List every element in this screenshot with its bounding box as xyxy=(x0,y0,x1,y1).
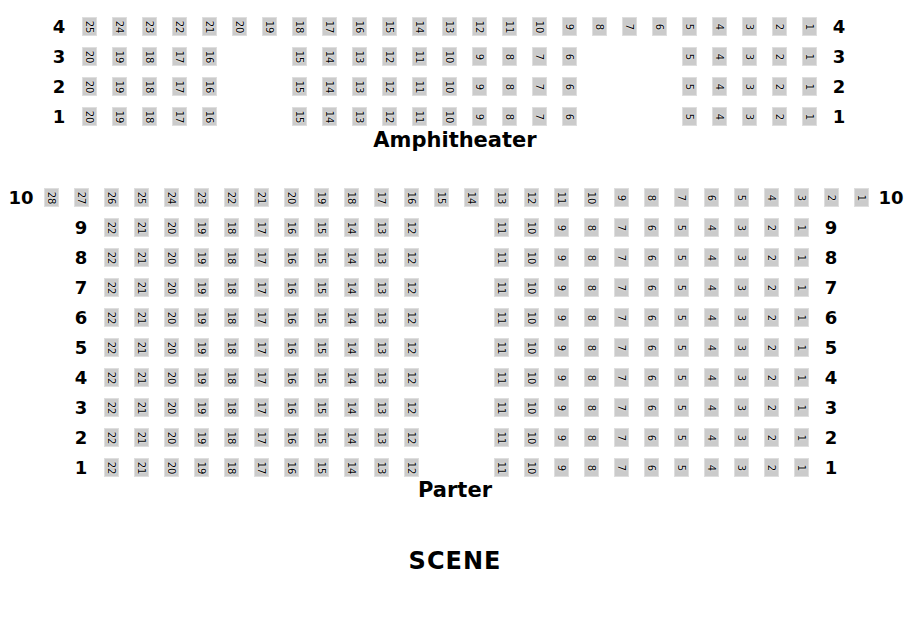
seat-parter-r6-s17[interactable]: 17 xyxy=(254,308,269,327)
seat-parter-r6-s19[interactable]: 19 xyxy=(194,308,209,327)
seat-parter-r10-s12[interactable]: 12 xyxy=(524,188,539,207)
seat-parter-r9-s9[interactable]: 9 xyxy=(554,218,569,237)
seat-parter-r4-s19[interactable]: 19 xyxy=(194,368,209,387)
seat-parter-r10-s14[interactable]: 14 xyxy=(464,188,479,207)
seat-parter-r4-s1[interactable]: 1 xyxy=(794,368,809,387)
seat-amphitheater-r3-s10[interactable]: 10 xyxy=(442,47,457,66)
seat-parter-r9-s19[interactable]: 19 xyxy=(194,218,209,237)
seat-parter-r3-s5[interactable]: 5 xyxy=(674,398,689,417)
seat-parter-r6-s21[interactable]: 21 xyxy=(134,308,149,327)
seat-parter-r8-s2[interactable]: 2 xyxy=(764,248,779,267)
seat-parter-r10-s3[interactable]: 3 xyxy=(794,188,809,207)
seat-parter-r9-s6[interactable]: 6 xyxy=(644,218,659,237)
seat-parter-r5-s17[interactable]: 17 xyxy=(254,338,269,357)
seat-amphitheater-r3-s1[interactable]: 1 xyxy=(802,47,817,66)
seat-parter-r9-s2[interactable]: 2 xyxy=(764,218,779,237)
seat-parter-r5-s13[interactable]: 13 xyxy=(374,338,389,357)
seat-amphitheater-r4-s10[interactable]: 10 xyxy=(532,17,547,36)
seat-parter-r5-s9[interactable]: 9 xyxy=(554,338,569,357)
seat-amphitheater-r4-s14[interactable]: 14 xyxy=(412,17,427,36)
seat-parter-r10-s7[interactable]: 7 xyxy=(674,188,689,207)
seat-parter-r7-s21[interactable]: 21 xyxy=(134,278,149,297)
seat-parter-r3-s3[interactable]: 3 xyxy=(734,398,749,417)
seat-parter-r10-s19[interactable]: 19 xyxy=(314,188,329,207)
seat-amphitheater-r4-s15[interactable]: 15 xyxy=(382,17,397,36)
seat-amphitheater-r1-s6[interactable]: 6 xyxy=(562,107,577,126)
seat-amphitheater-r2-s5[interactable]: 5 xyxy=(682,77,697,96)
seat-parter-r5-s6[interactable]: 6 xyxy=(644,338,659,357)
seat-parter-r7-s9[interactable]: 9 xyxy=(554,278,569,297)
seat-parter-r5-s3[interactable]: 3 xyxy=(734,338,749,357)
seat-parter-r8-s11[interactable]: 11 xyxy=(494,248,509,267)
seat-parter-r4-s5[interactable]: 5 xyxy=(674,368,689,387)
seat-parter-r8-s15[interactable]: 15 xyxy=(314,248,329,267)
seat-amphitheater-r1-s16[interactable]: 16 xyxy=(202,107,217,126)
seat-parter-r10-s28[interactable]: 28 xyxy=(44,188,59,207)
seat-amphitheater-r2-s8[interactable]: 8 xyxy=(502,77,517,96)
seat-parter-r8-s16[interactable]: 16 xyxy=(284,248,299,267)
seat-parter-r5-s22[interactable]: 22 xyxy=(104,338,119,357)
seat-parter-r2-s5[interactable]: 5 xyxy=(674,428,689,447)
seat-parter-r4-s21[interactable]: 21 xyxy=(134,368,149,387)
seat-parter-r2-s7[interactable]: 7 xyxy=(614,428,629,447)
seat-amphitheater-r3-s14[interactable]: 14 xyxy=(322,47,337,66)
seat-amphitheater-r4-s1[interactable]: 1 xyxy=(802,17,817,36)
seat-parter-r8-s8[interactable]: 8 xyxy=(584,248,599,267)
seat-parter-r5-s21[interactable]: 21 xyxy=(134,338,149,357)
seat-parter-r6-s9[interactable]: 9 xyxy=(554,308,569,327)
seat-amphitheater-r2-s12[interactable]: 12 xyxy=(382,77,397,96)
seat-parter-r10-s9[interactable]: 9 xyxy=(614,188,629,207)
seat-parter-r8-s12[interactable]: 12 xyxy=(404,248,419,267)
seat-parter-r8-s20[interactable]: 20 xyxy=(164,248,179,267)
seat-parter-r1-s11[interactable]: 11 xyxy=(494,458,509,477)
seat-parter-r8-s1[interactable]: 1 xyxy=(794,248,809,267)
seat-parter-r10-s6[interactable]: 6 xyxy=(704,188,719,207)
seat-parter-r6-s18[interactable]: 18 xyxy=(224,308,239,327)
seat-parter-r8-s10[interactable]: 10 xyxy=(524,248,539,267)
seat-amphitheater-r3-s13[interactable]: 13 xyxy=(352,47,367,66)
seat-parter-r5-s19[interactable]: 19 xyxy=(194,338,209,357)
seat-parter-r9-s1[interactable]: 1 xyxy=(794,218,809,237)
seat-amphitheater-r3-s4[interactable]: 4 xyxy=(712,47,727,66)
seat-parter-r6-s5[interactable]: 5 xyxy=(674,308,689,327)
seat-parter-r9-s21[interactable]: 21 xyxy=(134,218,149,237)
seat-parter-r10-s20[interactable]: 20 xyxy=(284,188,299,207)
seat-parter-r5-s4[interactable]: 4 xyxy=(704,338,719,357)
seat-parter-r1-s5[interactable]: 5 xyxy=(674,458,689,477)
seat-parter-r2-s9[interactable]: 9 xyxy=(554,428,569,447)
seat-parter-r6-s1[interactable]: 1 xyxy=(794,308,809,327)
seat-amphitheater-r2-s4[interactable]: 4 xyxy=(712,77,727,96)
seat-parter-r10-s18[interactable]: 18 xyxy=(344,188,359,207)
seat-parter-r3-s18[interactable]: 18 xyxy=(224,398,239,417)
seat-parter-r9-s12[interactable]: 12 xyxy=(404,218,419,237)
seat-amphitheater-r2-s18[interactable]: 18 xyxy=(142,77,157,96)
seat-parter-r4-s17[interactable]: 17 xyxy=(254,368,269,387)
seat-parter-r7-s1[interactable]: 1 xyxy=(794,278,809,297)
seat-parter-r8-s18[interactable]: 18 xyxy=(224,248,239,267)
seat-parter-r6-s13[interactable]: 13 xyxy=(374,308,389,327)
seat-parter-r6-s12[interactable]: 12 xyxy=(404,308,419,327)
seat-parter-r3-s6[interactable]: 6 xyxy=(644,398,659,417)
seat-parter-r7-s12[interactable]: 12 xyxy=(404,278,419,297)
seat-amphitheater-r2-s7[interactable]: 7 xyxy=(532,77,547,96)
seat-parter-r9-s11[interactable]: 11 xyxy=(494,218,509,237)
seat-parter-r5-s18[interactable]: 18 xyxy=(224,338,239,357)
seat-parter-r2-s10[interactable]: 10 xyxy=(524,428,539,447)
seat-parter-r9-s4[interactable]: 4 xyxy=(704,218,719,237)
seat-amphitheater-r1-s17[interactable]: 17 xyxy=(172,107,187,126)
seat-parter-r6-s15[interactable]: 15 xyxy=(314,308,329,327)
seat-parter-r2-s3[interactable]: 3 xyxy=(734,428,749,447)
seat-parter-r3-s9[interactable]: 9 xyxy=(554,398,569,417)
seat-amphitheater-r1-s4[interactable]: 4 xyxy=(712,107,727,126)
seat-parter-r1-s3[interactable]: 3 xyxy=(734,458,749,477)
seat-parter-r4-s6[interactable]: 6 xyxy=(644,368,659,387)
seat-parter-r7-s18[interactable]: 18 xyxy=(224,278,239,297)
seat-amphitheater-r3-s9[interactable]: 9 xyxy=(472,47,487,66)
seat-parter-r9-s20[interactable]: 20 xyxy=(164,218,179,237)
seat-amphitheater-r2-s19[interactable]: 19 xyxy=(112,77,127,96)
seat-parter-r5-s5[interactable]: 5 xyxy=(674,338,689,357)
seat-parter-r2-s12[interactable]: 12 xyxy=(404,428,419,447)
seat-parter-r3-s20[interactable]: 20 xyxy=(164,398,179,417)
seat-amphitheater-r3-s7[interactable]: 7 xyxy=(532,47,547,66)
seat-amphitheater-r3-s2[interactable]: 2 xyxy=(772,47,787,66)
seat-amphitheater-r3-s8[interactable]: 8 xyxy=(502,47,517,66)
seat-parter-r2-s14[interactable]: 14 xyxy=(344,428,359,447)
seat-amphitheater-r2-s1[interactable]: 1 xyxy=(802,77,817,96)
seat-amphitheater-r3-s16[interactable]: 16 xyxy=(202,47,217,66)
seat-parter-r10-s27[interactable]: 27 xyxy=(74,188,89,207)
seat-parter-r2-s15[interactable]: 15 xyxy=(314,428,329,447)
seat-parter-r7-s7[interactable]: 7 xyxy=(614,278,629,297)
seat-parter-r7-s17[interactable]: 17 xyxy=(254,278,269,297)
seat-amphitheater-r1-s14[interactable]: 14 xyxy=(322,107,337,126)
seat-parter-r1-s22[interactable]: 22 xyxy=(104,458,119,477)
seat-parter-r6-s6[interactable]: 6 xyxy=(644,308,659,327)
seat-parter-r1-s6[interactable]: 6 xyxy=(644,458,659,477)
seat-parter-r10-s10[interactable]: 10 xyxy=(584,188,599,207)
seat-amphitheater-r3-s3[interactable]: 3 xyxy=(742,47,757,66)
seat-amphitheater-r4-s13[interactable]: 13 xyxy=(442,17,457,36)
seat-parter-r8-s9[interactable]: 9 xyxy=(554,248,569,267)
seat-parter-r4-s20[interactable]: 20 xyxy=(164,368,179,387)
seat-amphitheater-r1-s3[interactable]: 3 xyxy=(742,107,757,126)
seat-parter-r4-s14[interactable]: 14 xyxy=(344,368,359,387)
seat-parter-r7-s19[interactable]: 19 xyxy=(194,278,209,297)
seat-amphitheater-r1-s12[interactable]: 12 xyxy=(382,107,397,126)
seat-amphitheater-r4-s5[interactable]: 5 xyxy=(682,17,697,36)
seat-amphitheater-r1-s15[interactable]: 15 xyxy=(292,107,307,126)
seat-parter-r4-s10[interactable]: 10 xyxy=(524,368,539,387)
seat-amphitheater-r2-s17[interactable]: 17 xyxy=(172,77,187,96)
seat-parter-r9-s7[interactable]: 7 xyxy=(614,218,629,237)
seat-parter-r2-s20[interactable]: 20 xyxy=(164,428,179,447)
seat-parter-r9-s16[interactable]: 16 xyxy=(284,218,299,237)
seat-parter-r10-s5[interactable]: 5 xyxy=(734,188,749,207)
seat-amphitheater-r1-s1[interactable]: 1 xyxy=(802,107,817,126)
seat-parter-r3-s10[interactable]: 10 xyxy=(524,398,539,417)
seat-parter-r2-s8[interactable]: 8 xyxy=(584,428,599,447)
seat-parter-r4-s4[interactable]: 4 xyxy=(704,368,719,387)
seat-parter-r2-s16[interactable]: 16 xyxy=(284,428,299,447)
seat-parter-r6-s10[interactable]: 10 xyxy=(524,308,539,327)
seat-parter-r8-s3[interactable]: 3 xyxy=(734,248,749,267)
seat-parter-r1-s21[interactable]: 21 xyxy=(134,458,149,477)
seat-parter-r3-s17[interactable]: 17 xyxy=(254,398,269,417)
seat-parter-r10-s21[interactable]: 21 xyxy=(254,188,269,207)
seat-parter-r4-s8[interactable]: 8 xyxy=(584,368,599,387)
seat-amphitheater-r1-s9[interactable]: 9 xyxy=(472,107,487,126)
seat-parter-r4-s3[interactable]: 3 xyxy=(734,368,749,387)
seat-parter-r3-s1[interactable]: 1 xyxy=(794,398,809,417)
seat-parter-r7-s16[interactable]: 16 xyxy=(284,278,299,297)
seat-parter-r9-s22[interactable]: 22 xyxy=(104,218,119,237)
seat-parter-r3-s19[interactable]: 19 xyxy=(194,398,209,417)
seat-parter-r2-s4[interactable]: 4 xyxy=(704,428,719,447)
seat-parter-r1-s17[interactable]: 17 xyxy=(254,458,269,477)
seat-amphitheater-r4-s16[interactable]: 16 xyxy=(352,17,367,36)
seat-parter-r5-s15[interactable]: 15 xyxy=(314,338,329,357)
seat-parter-r4-s16[interactable]: 16 xyxy=(284,368,299,387)
seat-parter-r1-s12[interactable]: 12 xyxy=(404,458,419,477)
seat-parter-r2-s13[interactable]: 13 xyxy=(374,428,389,447)
seat-parter-r10-s1[interactable]: 1 xyxy=(854,188,869,207)
seat-parter-r3-s22[interactable]: 22 xyxy=(104,398,119,417)
seat-parter-r9-s13[interactable]: 13 xyxy=(374,218,389,237)
seat-amphitheater-r1-s18[interactable]: 18 xyxy=(142,107,157,126)
seat-amphitheater-r3-s6[interactable]: 6 xyxy=(562,47,577,66)
seat-parter-r8-s14[interactable]: 14 xyxy=(344,248,359,267)
seat-parter-r6-s20[interactable]: 20 xyxy=(164,308,179,327)
seat-parter-r3-s11[interactable]: 11 xyxy=(494,398,509,417)
seat-parter-r9-s5[interactable]: 5 xyxy=(674,218,689,237)
seat-amphitheater-r2-s14[interactable]: 14 xyxy=(322,77,337,96)
seat-parter-r6-s4[interactable]: 4 xyxy=(704,308,719,327)
seat-parter-r1-s10[interactable]: 10 xyxy=(524,458,539,477)
seat-parter-r10-s16[interactable]: 16 xyxy=(404,188,419,207)
seat-parter-r6-s3[interactable]: 3 xyxy=(734,308,749,327)
seat-parter-r5-s2[interactable]: 2 xyxy=(764,338,779,357)
seat-parter-r2-s19[interactable]: 19 xyxy=(194,428,209,447)
seat-parter-r7-s4[interactable]: 4 xyxy=(704,278,719,297)
seat-parter-r1-s18[interactable]: 18 xyxy=(224,458,239,477)
seat-parter-r2-s21[interactable]: 21 xyxy=(134,428,149,447)
seat-amphitheater-r4-s20[interactable]: 20 xyxy=(232,17,247,36)
seat-parter-r1-s14[interactable]: 14 xyxy=(344,458,359,477)
seat-parter-r7-s10[interactable]: 10 xyxy=(524,278,539,297)
seat-parter-r9-s14[interactable]: 14 xyxy=(344,218,359,237)
seat-parter-r8-s7[interactable]: 7 xyxy=(614,248,629,267)
seat-parter-r7-s13[interactable]: 13 xyxy=(374,278,389,297)
seat-parter-r9-s17[interactable]: 17 xyxy=(254,218,269,237)
seat-parter-r5-s12[interactable]: 12 xyxy=(404,338,419,357)
seat-parter-r1-s19[interactable]: 19 xyxy=(194,458,209,477)
seat-amphitheater-r3-s19[interactable]: 19 xyxy=(112,47,127,66)
seat-parter-r6-s2[interactable]: 2 xyxy=(764,308,779,327)
seat-amphitheater-r1-s20[interactable]: 20 xyxy=(82,107,97,126)
seat-amphitheater-r3-s15[interactable]: 15 xyxy=(292,47,307,66)
seat-parter-r6-s7[interactable]: 7 xyxy=(614,308,629,327)
seat-parter-r4-s2[interactable]: 2 xyxy=(764,368,779,387)
seat-amphitheater-r4-s4[interactable]: 4 xyxy=(712,17,727,36)
seat-parter-r10-s26[interactable]: 26 xyxy=(104,188,119,207)
seat-parter-r9-s3[interactable]: 3 xyxy=(734,218,749,237)
seat-amphitheater-r4-s9[interactable]: 9 xyxy=(562,17,577,36)
seat-amphitheater-r4-s22[interactable]: 22 xyxy=(172,17,187,36)
seat-parter-r5-s7[interactable]: 7 xyxy=(614,338,629,357)
seat-parter-r3-s2[interactable]: 2 xyxy=(764,398,779,417)
seat-parter-r2-s18[interactable]: 18 xyxy=(224,428,239,447)
seat-amphitheater-r1-s13[interactable]: 13 xyxy=(352,107,367,126)
seat-parter-r10-s17[interactable]: 17 xyxy=(374,188,389,207)
seat-amphitheater-r2-s20[interactable]: 20 xyxy=(82,77,97,96)
seat-parter-r8-s21[interactable]: 21 xyxy=(134,248,149,267)
seat-parter-r3-s12[interactable]: 12 xyxy=(404,398,419,417)
seat-parter-r2-s22[interactable]: 22 xyxy=(104,428,119,447)
seat-parter-r10-s15[interactable]: 15 xyxy=(434,188,449,207)
seat-amphitheater-r3-s18[interactable]: 18 xyxy=(142,47,157,66)
seat-parter-r10-s22[interactable]: 22 xyxy=(224,188,239,207)
seat-parter-r2-s11[interactable]: 11 xyxy=(494,428,509,447)
seat-parter-r8-s22[interactable]: 22 xyxy=(104,248,119,267)
seat-amphitheater-r3-s17[interactable]: 17 xyxy=(172,47,187,66)
seat-parter-r10-s25[interactable]: 25 xyxy=(134,188,149,207)
seat-parter-r8-s5[interactable]: 5 xyxy=(674,248,689,267)
seat-amphitheater-r3-s20[interactable]: 20 xyxy=(82,47,97,66)
seat-amphitheater-r1-s19[interactable]: 19 xyxy=(112,107,127,126)
seat-amphitheater-r2-s10[interactable]: 10 xyxy=(442,77,457,96)
seat-parter-r4-s15[interactable]: 15 xyxy=(314,368,329,387)
seat-amphitheater-r1-s10[interactable]: 10 xyxy=(442,107,457,126)
seat-parter-r7-s14[interactable]: 14 xyxy=(344,278,359,297)
seat-parter-r1-s15[interactable]: 15 xyxy=(314,458,329,477)
seat-amphitheater-r2-s15[interactable]: 15 xyxy=(292,77,307,96)
seat-parter-r6-s16[interactable]: 16 xyxy=(284,308,299,327)
seat-parter-r3-s13[interactable]: 13 xyxy=(374,398,389,417)
seat-amphitheater-r4-s2[interactable]: 2 xyxy=(772,17,787,36)
seat-parter-r4-s7[interactable]: 7 xyxy=(614,368,629,387)
seat-parter-r5-s10[interactable]: 10 xyxy=(524,338,539,357)
seat-parter-r1-s16[interactable]: 16 xyxy=(284,458,299,477)
seat-parter-r3-s21[interactable]: 21 xyxy=(134,398,149,417)
seat-amphitheater-r2-s9[interactable]: 9 xyxy=(472,77,487,96)
seat-amphitheater-r2-s6[interactable]: 6 xyxy=(562,77,577,96)
seat-amphitheater-r4-s21[interactable]: 21 xyxy=(202,17,217,36)
seat-parter-r1-s4[interactable]: 4 xyxy=(704,458,719,477)
seat-parter-r2-s2[interactable]: 2 xyxy=(764,428,779,447)
seat-parter-r6-s8[interactable]: 8 xyxy=(584,308,599,327)
seat-parter-r7-s15[interactable]: 15 xyxy=(314,278,329,297)
seat-amphitheater-r1-s7[interactable]: 7 xyxy=(532,107,547,126)
seat-parter-r3-s4[interactable]: 4 xyxy=(704,398,719,417)
seat-parter-r3-s8[interactable]: 8 xyxy=(584,398,599,417)
seat-amphitheater-r4-s19[interactable]: 19 xyxy=(262,17,277,36)
seat-parter-r2-s1[interactable]: 1 xyxy=(794,428,809,447)
seat-parter-r5-s14[interactable]: 14 xyxy=(344,338,359,357)
seat-amphitheater-r4-s11[interactable]: 11 xyxy=(502,17,517,36)
seat-parter-r9-s8[interactable]: 8 xyxy=(584,218,599,237)
seat-parter-r7-s3[interactable]: 3 xyxy=(734,278,749,297)
seat-amphitheater-r4-s23[interactable]: 23 xyxy=(142,17,157,36)
seat-parter-r5-s1[interactable]: 1 xyxy=(794,338,809,357)
seat-parter-r4-s11[interactable]: 11 xyxy=(494,368,509,387)
seat-amphitheater-r4-s24[interactable]: 24 xyxy=(112,17,127,36)
seat-parter-r4-s12[interactable]: 12 xyxy=(404,368,419,387)
seat-parter-r6-s11[interactable]: 11 xyxy=(494,308,509,327)
seat-parter-r1-s2[interactable]: 2 xyxy=(764,458,779,477)
seat-parter-r5-s11[interactable]: 11 xyxy=(494,338,509,357)
seat-parter-r5-s20[interactable]: 20 xyxy=(164,338,179,357)
seat-amphitheater-r4-s3[interactable]: 3 xyxy=(742,17,757,36)
seat-parter-r1-s8[interactable]: 8 xyxy=(584,458,599,477)
seat-amphitheater-r1-s5[interactable]: 5 xyxy=(682,107,697,126)
seat-amphitheater-r4-s8[interactable]: 8 xyxy=(592,17,607,36)
seat-parter-r9-s18[interactable]: 18 xyxy=(224,218,239,237)
seat-parter-r4-s9[interactable]: 9 xyxy=(554,368,569,387)
seat-parter-r7-s6[interactable]: 6 xyxy=(644,278,659,297)
seat-parter-r7-s20[interactable]: 20 xyxy=(164,278,179,297)
seat-parter-r9-s10[interactable]: 10 xyxy=(524,218,539,237)
seat-amphitheater-r4-s17[interactable]: 17 xyxy=(322,17,337,36)
seat-amphitheater-r4-s25[interactable]: 25 xyxy=(82,17,97,36)
seat-parter-r1-s9[interactable]: 9 xyxy=(554,458,569,477)
seat-parter-r4-s13[interactable]: 13 xyxy=(374,368,389,387)
seat-amphitheater-r2-s16[interactable]: 16 xyxy=(202,77,217,96)
seat-parter-r7-s22[interactable]: 22 xyxy=(104,278,119,297)
seat-parter-r7-s5[interactable]: 5 xyxy=(674,278,689,297)
seat-parter-r1-s13[interactable]: 13 xyxy=(374,458,389,477)
seat-amphitheater-r2-s2[interactable]: 2 xyxy=(772,77,787,96)
seat-parter-r6-s22[interactable]: 22 xyxy=(104,308,119,327)
seat-amphitheater-r4-s6[interactable]: 6 xyxy=(652,17,667,36)
seat-parter-r1-s1[interactable]: 1 xyxy=(794,458,809,477)
seat-parter-r10-s2[interactable]: 2 xyxy=(824,188,839,207)
seat-parter-r7-s2[interactable]: 2 xyxy=(764,278,779,297)
seat-parter-r2-s6[interactable]: 6 xyxy=(644,428,659,447)
seat-parter-r10-s23[interactable]: 23 xyxy=(194,188,209,207)
seat-parter-r8-s17[interactable]: 17 xyxy=(254,248,269,267)
seat-parter-r8-s13[interactable]: 13 xyxy=(374,248,389,267)
seat-parter-r10-s13[interactable]: 13 xyxy=(494,188,509,207)
seat-parter-r1-s7[interactable]: 7 xyxy=(614,458,629,477)
seat-parter-r3-s14[interactable]: 14 xyxy=(344,398,359,417)
seat-parter-r10-s11[interactable]: 11 xyxy=(554,188,569,207)
seat-parter-r8-s4[interactable]: 4 xyxy=(704,248,719,267)
seat-parter-r9-s15[interactable]: 15 xyxy=(314,218,329,237)
seat-parter-r7-s8[interactable]: 8 xyxy=(584,278,599,297)
seat-amphitheater-r3-s12[interactable]: 12 xyxy=(382,47,397,66)
seat-amphitheater-r2-s3[interactable]: 3 xyxy=(742,77,757,96)
seat-parter-r10-s8[interactable]: 8 xyxy=(644,188,659,207)
seat-parter-r3-s16[interactable]: 16 xyxy=(284,398,299,417)
seat-amphitheater-r2-s11[interactable]: 11 xyxy=(412,77,427,96)
seat-parter-r5-s16[interactable]: 16 xyxy=(284,338,299,357)
seat-parter-r7-s11[interactable]: 11 xyxy=(494,278,509,297)
seat-amphitheater-r1-s8[interactable]: 8 xyxy=(502,107,517,126)
seat-parter-r10-s4[interactable]: 4 xyxy=(764,188,779,207)
seat-amphitheater-r4-s7[interactable]: 7 xyxy=(622,17,637,36)
seat-amphitheater-r2-s13[interactable]: 13 xyxy=(352,77,367,96)
seat-parter-r1-s20[interactable]: 20 xyxy=(164,458,179,477)
seat-parter-r2-s17[interactable]: 17 xyxy=(254,428,269,447)
seat-amphitheater-r1-s2[interactable]: 2 xyxy=(772,107,787,126)
seat-amphitheater-r3-s5[interactable]: 5 xyxy=(682,47,697,66)
seat-parter-r3-s7[interactable]: 7 xyxy=(614,398,629,417)
seat-parter-r3-s15[interactable]: 15 xyxy=(314,398,329,417)
